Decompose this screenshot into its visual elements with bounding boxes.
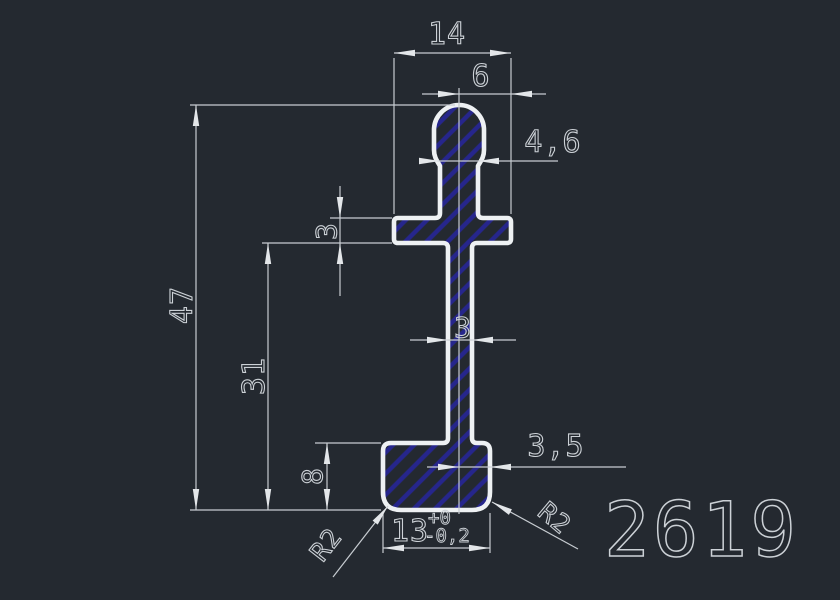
profile-number-title: 2619 xyxy=(604,485,799,574)
profile-cross-section xyxy=(383,105,511,510)
arrow-left-icon xyxy=(511,91,532,97)
arrow-up-icon xyxy=(265,243,271,264)
label-arm-thickness: 3 xyxy=(310,222,343,240)
label-neck-width: 4,6 xyxy=(524,125,581,160)
arrow-up-icon xyxy=(324,443,330,464)
arrow-right-icon xyxy=(427,337,448,343)
arrow-down-icon xyxy=(324,489,330,510)
label-foot-tol-minus: -0,2 xyxy=(424,525,470,547)
label-center-to-arm-right: 6 xyxy=(471,59,490,94)
profile-outline-shape xyxy=(383,105,511,510)
label-arm-width: 14 xyxy=(428,17,466,52)
arrow-down-icon xyxy=(337,197,343,218)
arrow-right-icon xyxy=(469,545,490,551)
technical-drawing: 14 6 4,6 3 47 31 3 8 3,5 13 +0 -0,2 R2 R… xyxy=(0,0,840,600)
dimension-labels: 14 6 4,6 3 47 31 3 8 3,5 13 +0 -0,2 R2 R… xyxy=(165,17,585,567)
label-stem-width: 3 xyxy=(454,311,472,344)
label-center-to-foot-right: 3,5 xyxy=(527,429,584,464)
label-stem-height: 31 xyxy=(237,357,272,395)
label-radius-bottom-left: R2 xyxy=(305,523,349,568)
arrow-left-icon xyxy=(472,337,493,343)
arrow-up-icon xyxy=(193,105,199,126)
arrow-right-icon xyxy=(490,50,511,56)
leader-arrow-icon xyxy=(492,502,512,515)
leader-arrow-icon xyxy=(373,506,388,525)
arrow-down-icon xyxy=(193,489,199,510)
label-foot-height: 8 xyxy=(296,467,329,485)
arrow-up-icon xyxy=(337,243,343,264)
arrow-left-icon xyxy=(490,464,511,470)
cad-drawing-canvas[interactable]: 14 6 4,6 3 47 31 3 8 3,5 13 +0 -0,2 R2 R… xyxy=(0,0,840,600)
arrow-down-icon xyxy=(265,489,271,510)
dim-arm-thickness xyxy=(337,186,343,296)
arrow-right-icon xyxy=(438,91,459,97)
label-radius-bottom-right: R2 xyxy=(532,497,577,541)
arrow-left-icon xyxy=(394,50,415,56)
label-overall-height: 47 xyxy=(165,286,200,324)
